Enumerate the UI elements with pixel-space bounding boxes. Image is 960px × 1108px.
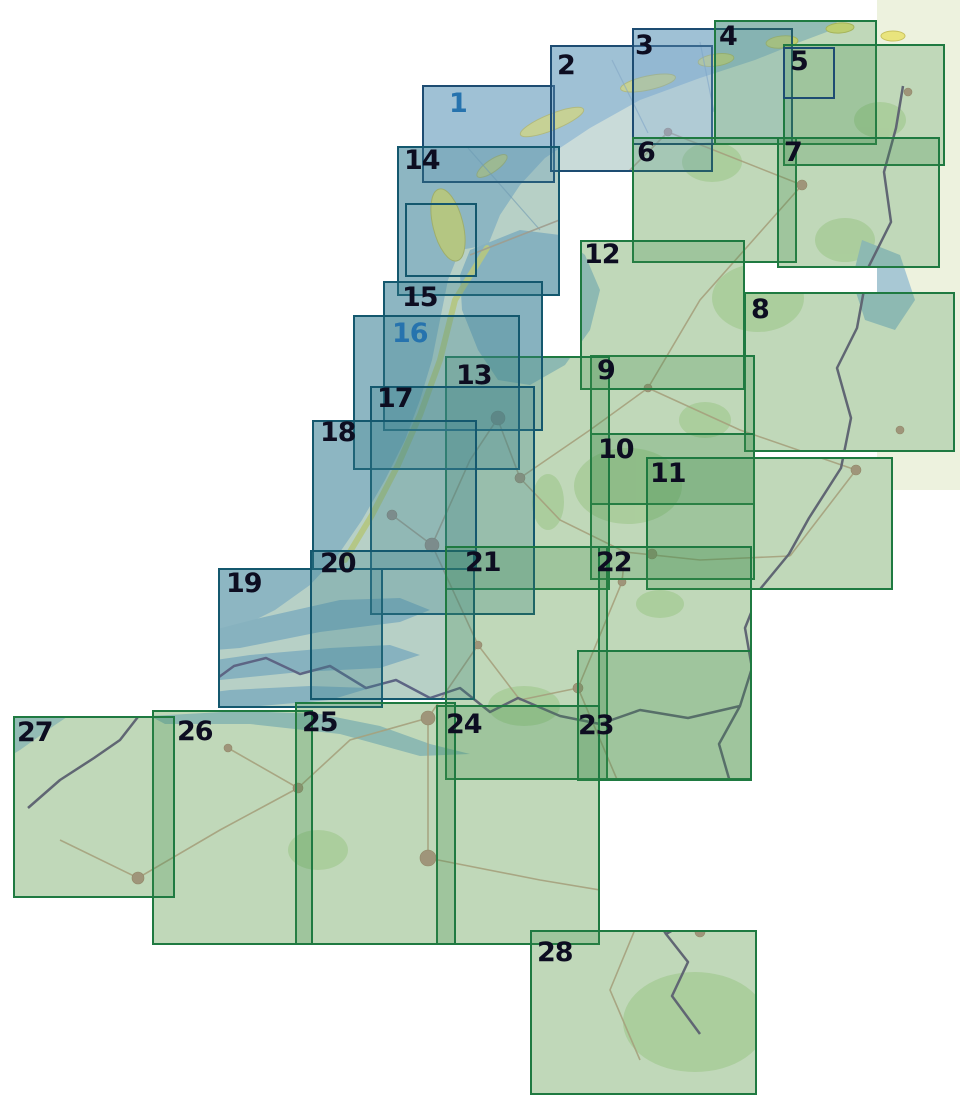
sheet-number-19: 19	[226, 570, 262, 597]
sheet-number-17: 17	[377, 385, 413, 412]
sheet-number-24: 24	[446, 711, 482, 738]
sheet-number-12: 12	[584, 241, 620, 268]
sheet-number-8: 8	[751, 296, 769, 323]
sheet-number-9: 9	[597, 357, 615, 384]
map-sheet-index: 1234567891011121314151617181920212223242…	[0, 0, 960, 1108]
sheet-number-21: 21	[465, 549, 501, 576]
sheet-number-6: 6	[637, 139, 655, 166]
sheet-number-26: 26	[177, 718, 213, 745]
sheet-number-27: 27	[17, 719, 53, 746]
sheet-number-14: 14	[404, 147, 440, 174]
sheet-number-15: 15	[402, 284, 438, 311]
sheet-number-13: 13	[456, 362, 492, 389]
sheet-number-20: 20	[320, 550, 356, 577]
sheet-number-18: 18	[320, 419, 356, 446]
sheet-number-7: 7	[784, 139, 802, 166]
sheet-number-4: 4	[719, 23, 737, 50]
sheet-number-3: 3	[635, 32, 653, 59]
sheet-number-25: 25	[302, 709, 338, 736]
sheet-number-28: 28	[537, 939, 573, 966]
sheet-number-2: 2	[557, 52, 575, 79]
sheet-number-11: 11	[650, 460, 686, 487]
sheet-number-1: 1	[449, 90, 467, 117]
sheet-numbers-layer: 1234567891011121314151617181920212223242…	[0, 0, 960, 1108]
sheet-number-5: 5	[790, 48, 808, 75]
sheet-number-16: 16	[392, 320, 428, 347]
sheet-number-10: 10	[598, 436, 634, 463]
sheet-number-23: 23	[578, 712, 614, 739]
sheet-number-22: 22	[596, 549, 632, 576]
